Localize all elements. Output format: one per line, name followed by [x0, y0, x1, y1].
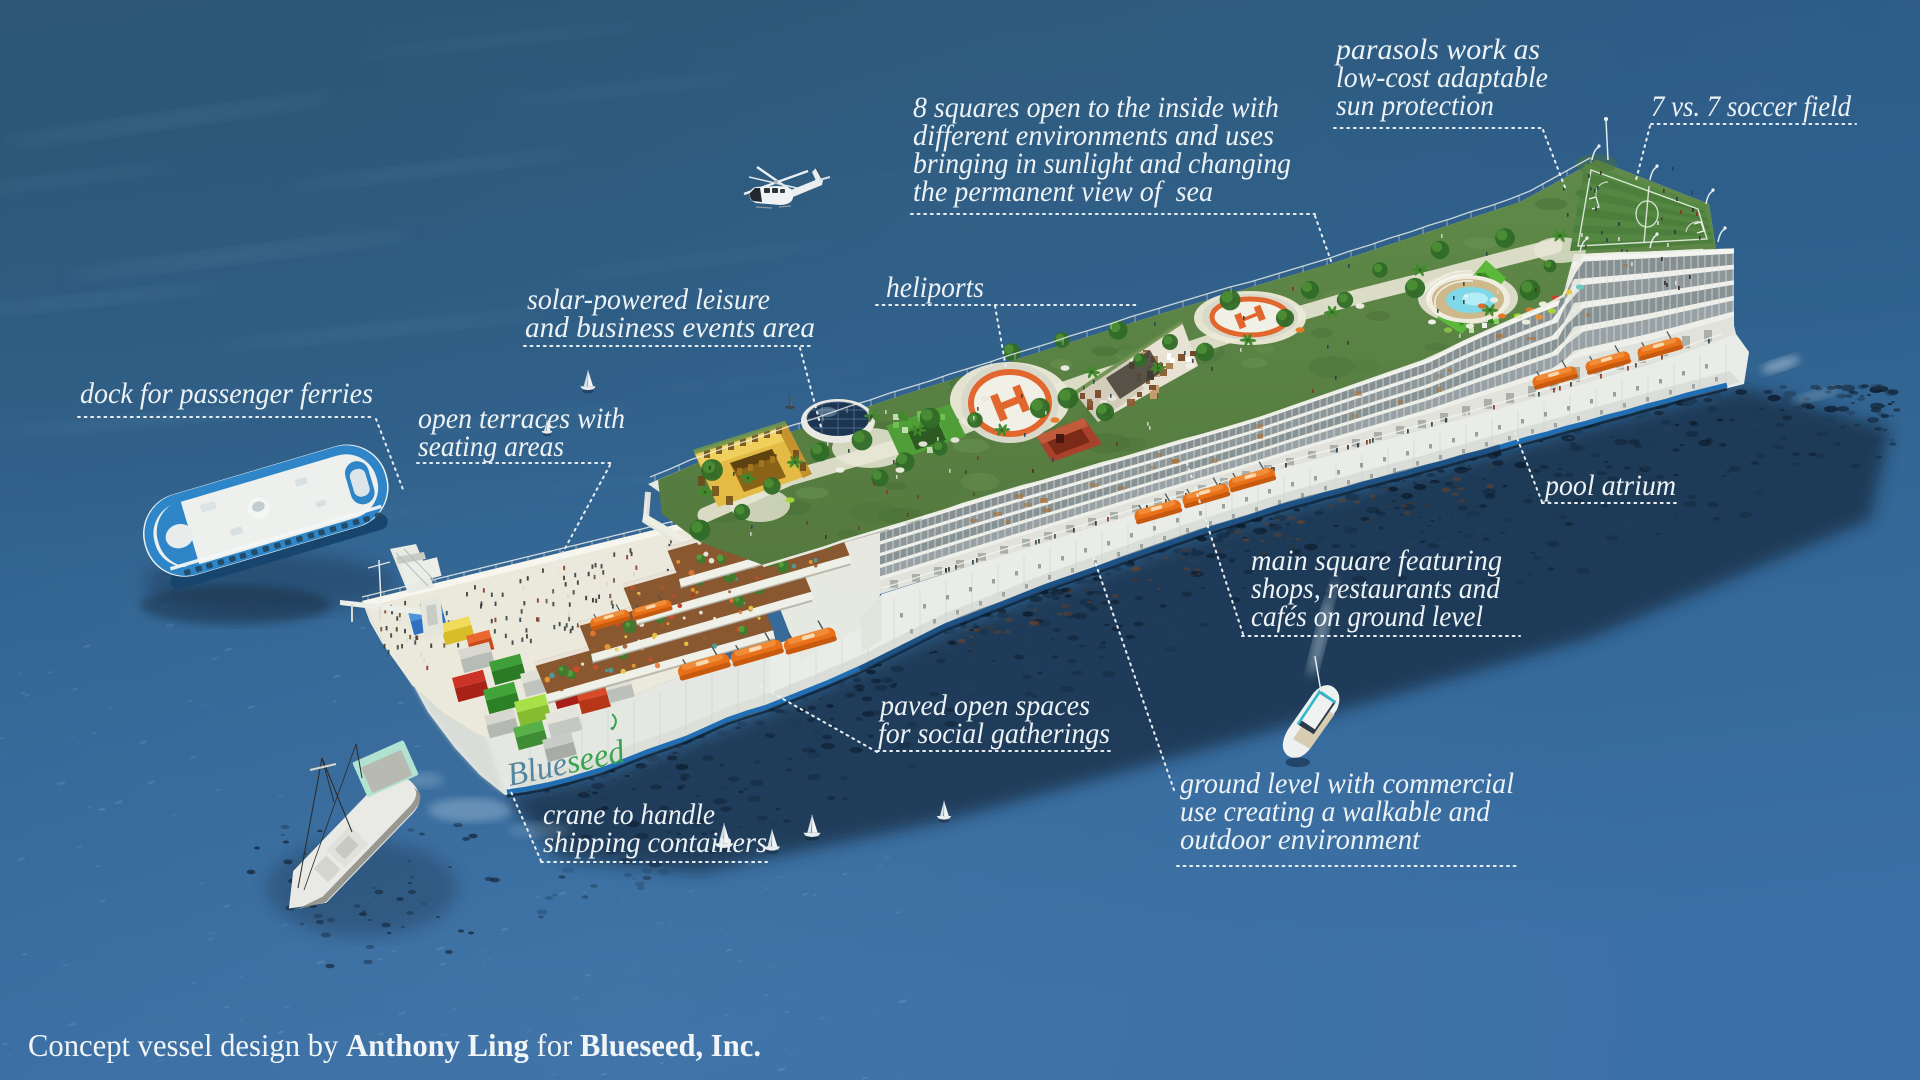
- svg-text:seating areas: seating areas: [418, 430, 564, 463]
- svg-text:for social gatherings: for social gatherings: [878, 717, 1110, 750]
- svg-text:7 vs. 7 soccer field: 7 vs. 7 soccer field: [1651, 90, 1852, 123]
- svg-text:and business events area: and business events area: [525, 311, 815, 344]
- svg-text:cafés on ground level: cafés on ground level: [1251, 600, 1483, 633]
- svg-text:Concept vessel design by Antho: Concept vessel design by Anthony Ling fo…: [28, 1028, 761, 1063]
- svg-text:sun protection: sun protection: [1336, 89, 1494, 122]
- svg-text:shipping containers: shipping containers: [543, 826, 767, 859]
- svg-text:outdoor environment: outdoor environment: [1180, 823, 1421, 856]
- svg-text:the permanent view of sea: the permanent view of sea: [913, 175, 1213, 208]
- svg-text:dock for passenger ferries: dock for passenger ferries: [80, 377, 373, 410]
- svg-text:pool atrium: pool atrium: [1543, 469, 1676, 502]
- svg-text:heliports: heliports: [886, 271, 984, 304]
